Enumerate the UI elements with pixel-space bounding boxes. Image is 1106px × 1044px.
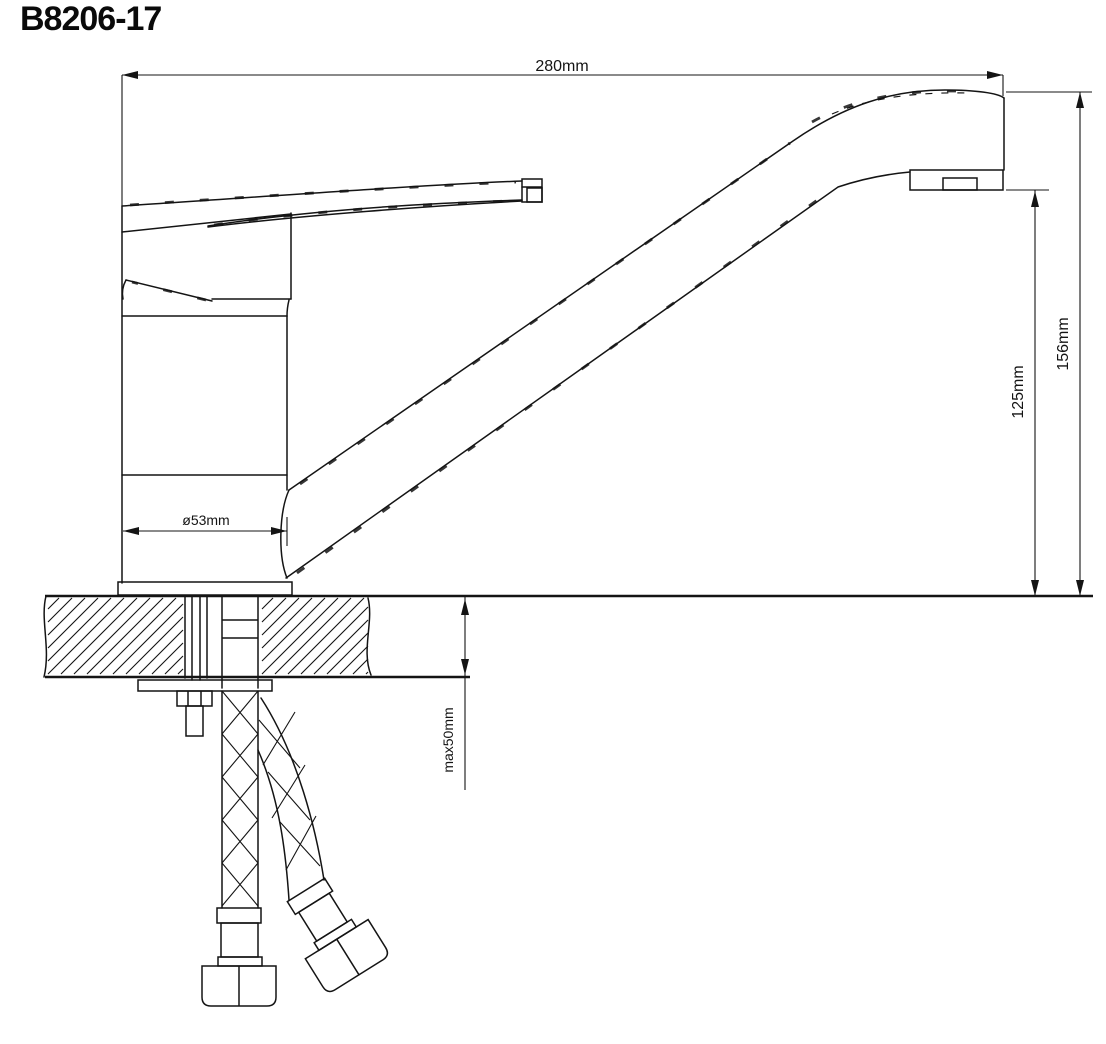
dimension-deck-thickness: max50mm bbox=[440, 597, 469, 790]
arrowhead-up bbox=[1031, 191, 1039, 207]
stud-end bbox=[186, 706, 203, 736]
inlet-shank bbox=[222, 597, 258, 688]
arrowhead-right bbox=[987, 71, 1003, 79]
hose-washer bbox=[314, 919, 356, 950]
deck-section bbox=[44, 596, 1093, 688]
technical-drawing-page: B8206-17 280mm 156mm 125mm bbox=[0, 0, 1106, 1044]
mounting-hardware bbox=[138, 680, 272, 736]
dim-total-height-label: 156mm bbox=[1055, 317, 1072, 370]
arrowhead-down bbox=[1031, 580, 1039, 596]
diagonal-hose-fittings bbox=[275, 870, 391, 994]
braid-pattern bbox=[259, 712, 320, 870]
dimension-outlet-height: 125mm bbox=[1006, 190, 1049, 596]
spout bbox=[286, 90, 1004, 578]
handle-lever bbox=[122, 179, 542, 232]
deck-right-break-edge bbox=[367, 598, 371, 675]
hose-nut bbox=[299, 893, 348, 941]
dim-deck-thickness-label: max50mm bbox=[440, 707, 456, 772]
dimension-base-diameter: ø53mm bbox=[123, 512, 287, 546]
arrowhead-down bbox=[461, 659, 469, 675]
arrowhead-up bbox=[461, 599, 469, 615]
base-flange bbox=[118, 582, 292, 595]
hose-end-nut bbox=[305, 920, 390, 995]
dimension-total-height: 156mm bbox=[1006, 92, 1092, 596]
hose-washer bbox=[218, 957, 262, 966]
aerator bbox=[910, 170, 1003, 190]
braid-pattern bbox=[222, 691, 258, 906]
faucet-body bbox=[118, 206, 292, 595]
deck-hatch-left bbox=[48, 598, 183, 674]
mounting-washer-plate bbox=[138, 680, 272, 691]
dim-outlet-height-label: 125mm bbox=[1010, 365, 1027, 418]
dim-overall-width-label: 280mm bbox=[535, 58, 588, 75]
supply-hose-vertical bbox=[202, 691, 276, 1006]
faucet-technical-drawing: 280mm 156mm 125mm ø53mm bbox=[0, 0, 1106, 1044]
hose-collar bbox=[217, 908, 261, 923]
mounting-nut bbox=[177, 691, 212, 706]
hose-collar bbox=[287, 878, 332, 914]
arrowhead-left bbox=[122, 71, 138, 79]
arrowhead-down bbox=[1076, 580, 1084, 596]
hose-nut bbox=[221, 923, 258, 957]
lever-tip-knob bbox=[522, 179, 542, 202]
arrowhead-right bbox=[271, 527, 287, 535]
dim-base-diameter-label: ø53mm bbox=[182, 512, 229, 528]
dimension-overall-width: 280mm bbox=[122, 58, 1003, 206]
arrowhead-left bbox=[123, 527, 139, 535]
supply-hose-diagonal bbox=[258, 698, 390, 994]
mounting-stud-through-deck bbox=[185, 597, 207, 680]
hose-end-nut bbox=[202, 966, 276, 1006]
arrowhead-up bbox=[1076, 92, 1084, 108]
deck-left-break-edge bbox=[44, 596, 46, 677]
deck-hatch-right bbox=[262, 598, 368, 674]
